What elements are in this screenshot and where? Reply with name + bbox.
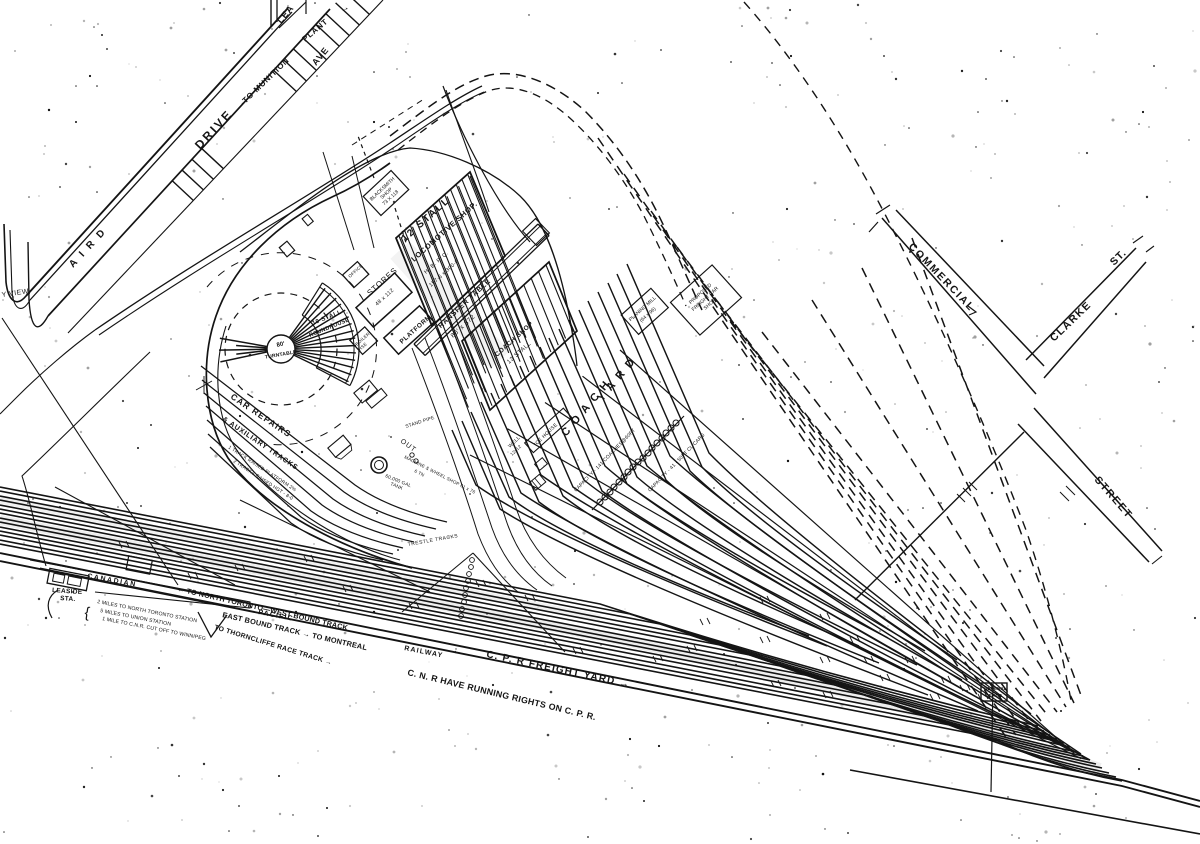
svg-text:OFFICE: OFFICE (985, 693, 1002, 698)
svg-text:GENERAL: GENERAL (984, 686, 1007, 691)
svg-text:STA.: STA. (60, 595, 76, 603)
svg-text:←: ← (451, 645, 463, 658)
